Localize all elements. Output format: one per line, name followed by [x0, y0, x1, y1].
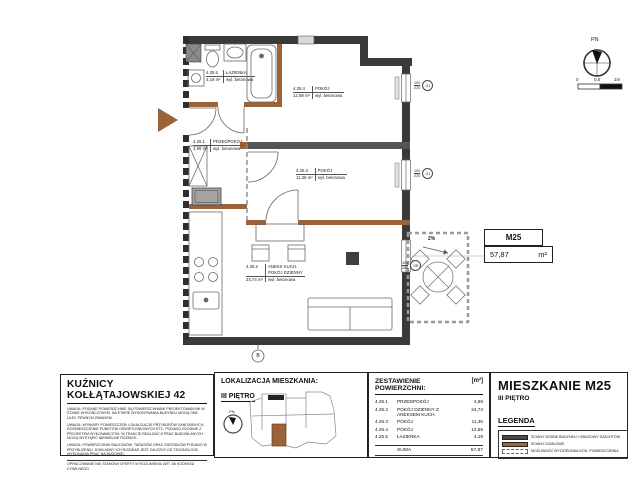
area-row: 4.25.1 PRZEDPOKÓJ 4,99 — [375, 399, 483, 404]
legend-box: ŚCIANY NOŚNE BUDYNKU I OBUDOWY SZACHTÓW … — [498, 430, 628, 459]
hall-furniture — [189, 146, 221, 205]
room-area: 4,19 m² — [206, 77, 223, 83]
balcony-chair — [447, 250, 465, 268]
unit-area-box: 57,87 m² — [484, 246, 553, 263]
room-floor-note: wyl. betonowa — [210, 146, 244, 152]
room-name: ŁAZIENKA — [223, 70, 255, 77]
kitchen-counter — [189, 212, 222, 335]
stove-burner — [209, 258, 218, 267]
balcony-chair — [411, 286, 429, 304]
area-row: 4.25.2 POKÓJ DZIENNY Z ANEKSEM KUCH. 24,… — [375, 407, 483, 417]
balcony-slope-label: 2% — [428, 236, 435, 242]
balcony-door-symbol: OB — [410, 260, 421, 271]
room-label-hall: 4.25.1 PRZEDPOKÓJ 4,99 m² wyl. betonowa — [193, 139, 244, 152]
room-number: 4.25.5 — [206, 70, 223, 77]
scale-bar-icon — [578, 84, 622, 89]
room-label-living-room: 4.25.2 ANEKS KUCH. POKÓJ DZIENNY 24,74 m… — [246, 264, 305, 282]
scale-one: 1m — [614, 77, 620, 82]
washing-machine — [188, 70, 204, 86]
balcony-door-tag: 100255 OB — [402, 260, 421, 271]
window-symbol: O1 — [422, 168, 433, 179]
balcony — [408, 233, 468, 322]
room-label-bedroom-1: 4.25.4 POKÓJ 12,59 m² wyl. betonowa — [293, 86, 344, 99]
disclaimer-block: KUŹNICY KOŁŁĄTAJOWSKIEJ 42 UWAGA: PODANE… — [60, 374, 214, 456]
window-tag: 100220 O1 — [414, 80, 433, 91]
area-schedule-block: ZESTAWIENIE POWIERZCHNI: [m²] 4.25.1 PRZ… — [368, 372, 490, 458]
room-label-bedroom-2: 4.25.3 POKÓJ 11,36 m² wyl. betonowa — [296, 168, 347, 181]
room-area: 12,59 m² — [293, 93, 312, 99]
stove-burner — [195, 273, 204, 282]
sum-label: SUMA — [397, 448, 457, 453]
room-area: 24,74 m² — [246, 277, 265, 283]
toilet-bowl — [207, 51, 219, 67]
chair — [252, 245, 269, 261]
floorplan-sheet: 4.25.5 ŁAZIENKA 4,19 m² wyl. betonowa 4.… — [0, 0, 640, 480]
area-row: 4.25.3 POKÓJ 11,36 — [375, 419, 483, 424]
room-floor-note: wyl. betonowa — [315, 175, 347, 181]
legend-swatch-partition — [502, 442, 528, 448]
room-number: 4.25.2 — [246, 264, 265, 277]
apartment-floor: III PIĘTRO — [498, 395, 620, 402]
room-name: POKÓJ — [315, 168, 347, 175]
unit-id-box: M25 — [484, 229, 543, 246]
room-number: 4.25.3 — [296, 168, 315, 175]
entrance-arrow — [158, 108, 178, 132]
offer-note: OPRACOWANIE NIE STANOWI OFERTY W ROZUMIE… — [67, 460, 207, 471]
key-plan-unit-highlight — [272, 424, 286, 446]
legend-item: MOŻLIWOŚĆ WYDZIELENIA DOD. POMIESZCZENIA — [502, 449, 624, 455]
toilet-tank — [205, 45, 220, 50]
coffee-table — [346, 252, 359, 265]
kitchen-annex — [189, 212, 222, 335]
room-area: 11,36 m² — [296, 175, 315, 181]
apartment-title: MIESZKANIE M25 — [498, 378, 620, 393]
stove-burner — [195, 258, 204, 267]
room-floor-note: wyl. betonowa — [223, 77, 255, 83]
street-address: KUŹNICY KOŁŁĄTAJOWSKIEJ 42 — [67, 379, 207, 404]
stove-burner — [209, 273, 218, 282]
apartment-block: MIESZKANIE M25 III PIĘTRO LEGENDA ŚCIANY… — [490, 372, 628, 458]
legal-note: UWAGA: WYMIARY POMIESZCZEŃ, LOKALIZACJE … — [67, 423, 207, 441]
balcony-chair — [447, 286, 465, 304]
unit-area-unit: m² — [538, 250, 547, 259]
area-schedule-title: ZESTAWIENIE POWIERZCHNI: — [375, 378, 472, 392]
legend-item: ŚCIANY DZIAŁOWE — [502, 442, 624, 448]
room-number: 4.25.4 — [293, 86, 312, 93]
window-tag: 100220 O1 — [414, 168, 433, 179]
area-row: 4.25.4 POKÓJ 12,59 — [375, 427, 483, 432]
chair — [288, 245, 305, 261]
key-plan — [250, 392, 336, 448]
legal-note: UWAGA: POWIERZCHNIE BALKONÓW, TARASÓW OR… — [67, 443, 207, 456]
legend-item: ŚCIANY NOŚNE BUDYNKU I OBUDOWY SZACHTÓW — [502, 435, 624, 441]
scale-half: 0,5 — [594, 77, 600, 82]
key-plan-north-label: PN — [229, 409, 235, 414]
area-row: 4.25.5 ŁAZIENKA 4,19 — [375, 434, 483, 439]
radiators — [395, 77, 399, 187]
room-label-bathroom: 4.25.5 ŁAZIENKA 4,19 m² wyl. betonowa — [206, 70, 255, 83]
window-symbol: O1 — [422, 80, 433, 91]
legend-swatch-division — [502, 449, 528, 455]
area-schedule-unit: [m²] — [472, 378, 483, 392]
north-compass-icon — [583, 49, 611, 77]
unit-area-value: 57,87 — [490, 250, 509, 259]
room-name: ANEKS KUCH. POKÓJ DZIENNY — [265, 264, 305, 277]
room-floor-note: wyl. betonowa — [312, 93, 344, 99]
legal-note: UWAGA: PODANE POWIERZCHNIE SĄ POWIERZCHN… — [67, 407, 207, 420]
room-area: 4,99 m² — [193, 146, 210, 152]
room-number: 4.25.1 — [193, 139, 210, 146]
scale-zero: 0 — [576, 77, 579, 82]
area-sum-row: SUMA 57,87 — [375, 445, 483, 456]
legend-swatch-loadbearing — [502, 435, 528, 441]
key-plan-compass-icon — [224, 415, 242, 433]
room-floor-note: wyl. betonowa — [265, 277, 305, 283]
section-tag-label: B — [253, 353, 263, 359]
sum-value: 57,87 — [457, 448, 483, 453]
compass-north-label: PN — [591, 37, 599, 43]
dining-table — [256, 224, 304, 241]
legend-title: LEGENDA — [498, 416, 535, 427]
room-name: PRZEDPOKÓJ — [210, 139, 244, 146]
room-name: POKÓJ — [312, 86, 344, 93]
